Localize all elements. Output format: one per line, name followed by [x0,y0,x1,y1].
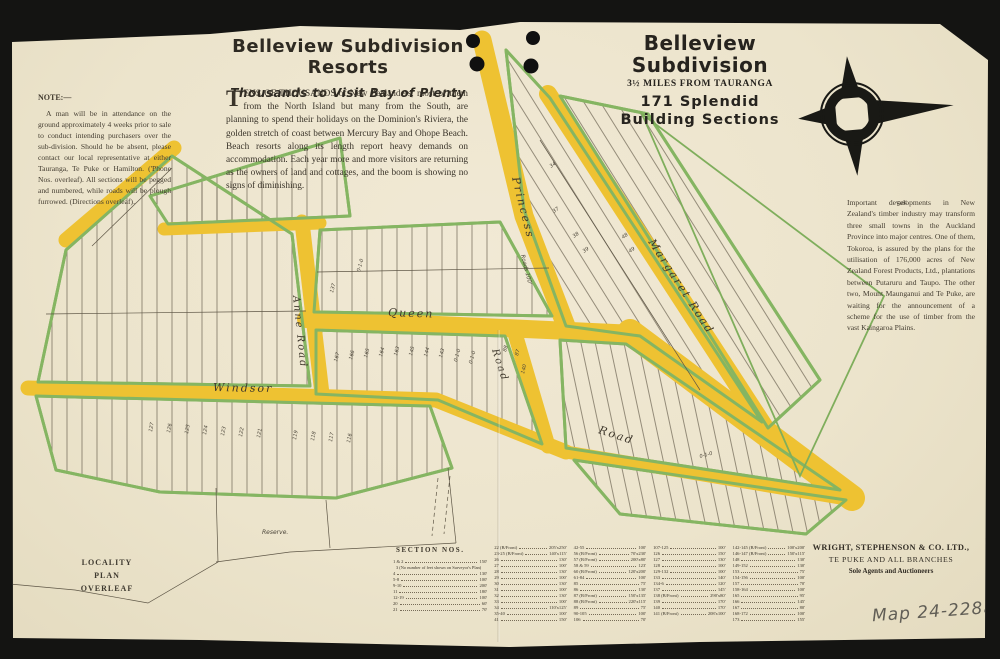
section-table-row: 10670' [574,617,646,623]
road-label: Queen [388,306,435,321]
punch-hole [524,59,539,74]
section-table-column: 22 (B/Front)205'x250'23-25 (B/Front)140'… [494,545,566,623]
agents-role: Sole Agents and Auctioneers [790,567,992,575]
brand-line-1: Belleview [606,33,794,55]
section-table-note: 3 (No number of feet shown on Surveyor's… [393,565,487,571]
masthead-right: Belleview Subdivision 3½ MILES FROM TAUR… [606,33,794,129]
sections-count-line: 171 Splendid [606,93,794,111]
page-title: Belleview Subdivision Resorts [226,36,470,78]
agents-branches: TE PUKE AND ALL BRANCHES [790,555,992,564]
road-label: Windsor [213,381,274,395]
punch-hole [526,31,540,45]
section-table-row: 141 (B/Front)208'x100' [653,611,725,617]
section-table: 1 & 2150'3 (No number of feet shown on S… [393,545,805,623]
intro-text: ENS OF THOUSANDS of New Zealanders, most… [226,89,468,191]
section-table-column: 107-125100'126150'127130'128100'129-1321… [653,545,725,623]
section-table-row: 41150' [494,617,566,623]
section-table-row: 2170' [393,607,487,613]
section-table-column: 1 & 2150'3 (No number of feet shown on S… [393,545,487,623]
note-heading: NOTE:— [38,92,171,104]
locality-note: LOCALITY PLAN OVERLEAF [52,556,162,596]
punch-hole [470,57,485,72]
lot-annotation: Reserve. [262,529,288,536]
distance-line: 3½ MILES FROM TAURANGA [606,79,794,89]
locality-line: PLAN [52,569,162,582]
note-block: NOTE:— A man will be in attendance on th… [38,92,171,207]
agents-block: WRIGHT, STEPHENSON & CO. LTD., TE PUKE A… [790,543,992,575]
paper-sheet: PrincessMargaret RoadQueenAnne RoadWinds… [0,0,1000,659]
scanned-map-page: PrincessMargaret RoadQueenAnne RoadWinds… [0,0,1000,659]
agents-name: WRIGHT, STEPHENSON & CO. LTD., [790,543,992,552]
timber-note: Important developments in New Zealand's … [847,197,975,334]
section-table-column: 42-55100'56 (B/Front)70'x230'57 (B/Front… [574,545,646,623]
locality-line: OVERLEAF [52,582,162,595]
note-body: A man will be in attendance on the groun… [38,108,171,207]
compass-rose-icon [793,47,959,180]
drop-cap: T [226,88,243,108]
brand-line-2: Subdivision [606,55,794,77]
sections-label-line: Building Sections [606,111,794,129]
intro-paragraph: TENS OF THOUSANDS of New Zealanders, mos… [226,88,468,194]
section-table-row: 173155' [733,617,805,623]
locality-line: LOCALITY [52,556,162,569]
